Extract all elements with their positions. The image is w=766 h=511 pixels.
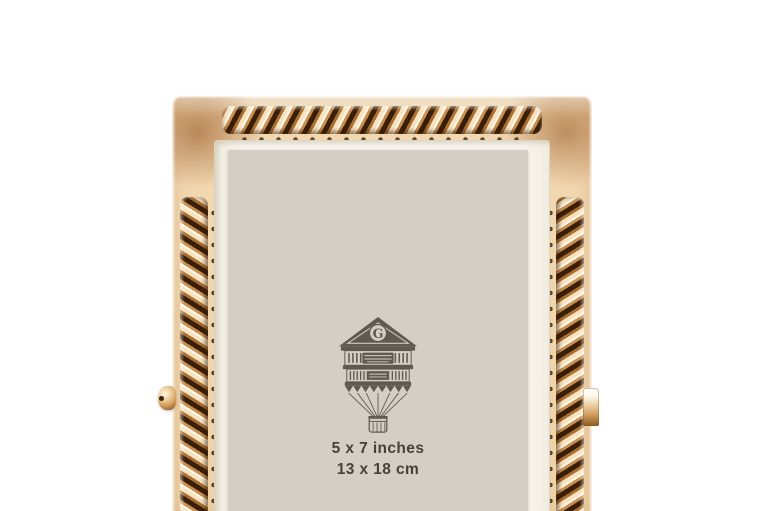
- size-text: 5 x 7 inches 13 x 18 cm: [228, 438, 528, 480]
- easel-hinge-right: [583, 388, 599, 426]
- picture-frame: G: [172, 95, 592, 511]
- frame-rope-right: [556, 197, 584, 511]
- frame-rope-left: [180, 197, 208, 511]
- easel-hinge-left: [158, 386, 176, 410]
- logo-letter: G: [373, 326, 384, 341]
- size-line-inches: 5 x 7 inches: [228, 438, 528, 459]
- balloon-house-logo-icon: G: [334, 316, 422, 435]
- product-photo: G: [0, 0, 766, 511]
- size-line-cm: 13 x 18 cm: [228, 459, 528, 480]
- frame-rope-top: [222, 106, 542, 134]
- insert-card: G: [228, 150, 528, 511]
- frame-mat: G: [214, 140, 550, 511]
